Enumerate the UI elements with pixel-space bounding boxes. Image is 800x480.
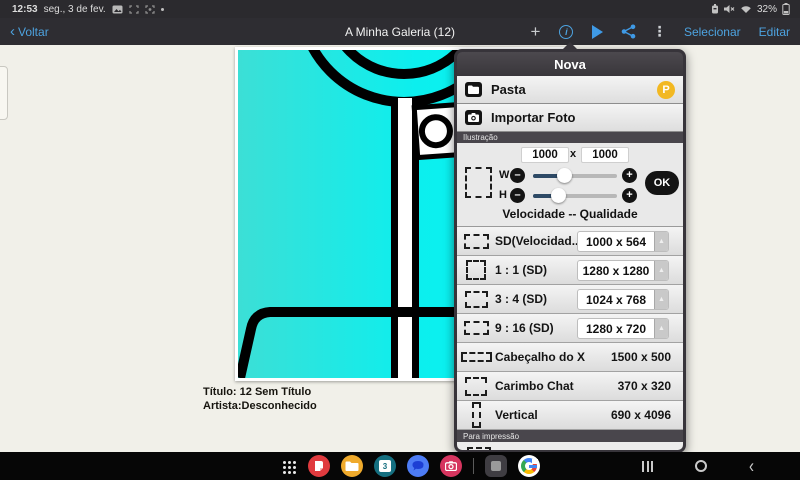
current-app-icon[interactable] <box>485 455 507 477</box>
folder-icon <box>465 82 482 97</box>
gallery-toolbar: ‹ Voltar A Minha Galeria (12) + i ⋮ Sele… <box>0 18 800 45</box>
aspect-9-16-icon <box>464 321 489 335</box>
calendar-app-icon[interactable]: 3 <box>374 455 396 477</box>
preset-x-header[interactable]: Cabeçalho do X 1500 x 500 <box>457 343 683 372</box>
info-button[interactable]: i <box>551 21 582 43</box>
camera-app-icon[interactable] <box>440 455 462 477</box>
smart-capture-icon <box>145 5 155 14</box>
artwork-artist: Artista:Desconhecido <box>203 399 317 413</box>
speed-quality-hint: Velocidade -- Qualidade <box>457 207 683 221</box>
spinner-arrow-icon: ▲ <box>654 319 668 338</box>
preset-sd[interactable]: SD(Velocidad... 1000 x 564 ▲ <box>457 227 683 256</box>
spinner-arrow-icon: ▲ <box>654 261 668 280</box>
calendar-day: 3 <box>379 460 391 472</box>
height-slider-thumb[interactable] <box>551 188 566 203</box>
more-dot-icon <box>161 8 164 11</box>
preset-chat-stamp[interactable]: Carimbo Chat 370 x 320 <box>457 372 683 401</box>
width-slider-track[interactable] <box>533 174 617 178</box>
battery-saver-icon <box>711 4 719 14</box>
dock-separator <box>473 458 474 474</box>
share-icon <box>621 24 636 39</box>
back-button[interactable]: ‹ Voltar <box>0 24 49 39</box>
preset-3-4-dropdown[interactable]: 1024 x 768 ▲ <box>577 289 669 310</box>
edit-button[interactable]: Editar <box>750 25 792 39</box>
artwork-caption: Título: 12 Sem Título Artista:Desconheci… <box>203 385 317 413</box>
preset-1-1[interactable]: 1 : 1 (SD) 1280 x 1280 ▲ <box>457 256 683 285</box>
ok-button[interactable]: OK <box>645 171 679 195</box>
width-slider-label: W <box>499 169 509 181</box>
info-icon: i <box>559 25 573 39</box>
section-illustration: Ilustração <box>457 132 683 143</box>
height-slider-label: H <box>499 189 507 201</box>
gallery-content: Título: 12 Sem Título Artista:Desconheci… <box>0 45 800 452</box>
camera-icon <box>465 110 482 125</box>
aspect-stamp-icon <box>465 377 487 396</box>
screen: 12:53 seg., 3 de fev. 32% <box>0 0 800 480</box>
clock: 12:53 <box>12 4 38 15</box>
play-icon <box>592 25 603 39</box>
import-photo-item[interactable]: Importar Foto <box>457 104 683 132</box>
width-minus-button[interactable]: – <box>510 168 525 183</box>
wifi-icon <box>740 4 752 14</box>
aspect-vertical-icon <box>472 402 481 428</box>
preset-vertical[interactable]: Vertical 690 x 4096 <box>457 401 683 430</box>
custom-aspect-icon <box>465 167 492 198</box>
mute-icon <box>724 4 735 14</box>
width-plus-button[interactable]: + <box>622 168 637 183</box>
select-button[interactable]: Selecionar <box>675 25 750 39</box>
aspect-header-icon <box>461 352 492 362</box>
width-input[interactable]: 1000 <box>521 147 569 163</box>
preset-9-16-dropdown[interactable]: 1280 x 720 ▲ <box>577 318 669 339</box>
screenshot-icon <box>112 5 123 14</box>
back-label: Voltar <box>18 25 49 39</box>
aspect-3-4-icon <box>465 291 488 308</box>
spinner-arrow-icon: ▲ <box>654 290 668 309</box>
artwork-title: Título: 12 Sem Título <box>203 385 317 399</box>
height-minus-button[interactable]: – <box>510 188 525 203</box>
plus-icon: + <box>530 22 540 42</box>
back-key[interactable]: ‹ <box>749 456 754 476</box>
spinner-arrow-icon: ▲ <box>654 232 668 251</box>
new-canvas-dialog: Nova Pasta P Importar Foto Ilustração <box>454 49 686 453</box>
height-slider-track[interactable] <box>533 194 617 198</box>
slideshow-button[interactable] <box>582 21 613 43</box>
folder-label: Pasta <box>491 82 526 97</box>
aspect-1-1-icon <box>466 260 486 280</box>
height-plus-button[interactable]: + <box>622 188 637 203</box>
height-input[interactable]: 1000 <box>581 147 629 163</box>
custom-size-panel: 1000 x 1000 W – + H – + OK Velocidade --… <box>457 143 683 227</box>
preset-1-1-dropdown[interactable]: 1280 x 1280 ▲ <box>577 260 669 281</box>
my-files-app-icon[interactable] <box>341 455 363 477</box>
apps-grid-icon[interactable] <box>283 461 297 475</box>
previous-artwork-card[interactable] <box>0 66 8 120</box>
back-chevron-icon: ‹ <box>10 24 15 39</box>
date: seg., 3 de fev. <box>44 4 106 15</box>
overflow-icon: ⋮ <box>652 23 666 40</box>
premium-badge: P <box>657 81 675 99</box>
width-slider-thumb[interactable] <box>557 168 572 183</box>
import-photo-label: Importar Foto <box>491 110 576 125</box>
aspect-sd-icon <box>464 234 489 249</box>
section-print: Para impressão <box>457 430 683 442</box>
home-key[interactable] <box>695 460 707 472</box>
size-x-separator: x <box>570 148 576 160</box>
dialog-caret <box>562 42 578 50</box>
battery-percent: 32% <box>757 4 777 15</box>
messages-app-icon[interactable] <box>407 455 429 477</box>
share-button[interactable] <box>613 21 644 43</box>
capture-frame-icon <box>129 5 139 14</box>
new-folder-item[interactable]: Pasta P <box>457 76 683 104</box>
status-bar: 12:53 seg., 3 de fev. 32% <box>0 0 800 18</box>
taskbar: 3 ‹ <box>0 452 800 480</box>
new-button[interactable]: + <box>520 21 551 43</box>
overflow-menu-button[interactable]: ⋮ <box>644 21 675 43</box>
chrome-app-icon[interactable] <box>518 455 540 477</box>
battery-icon <box>782 3 790 15</box>
notes-app-icon[interactable] <box>308 455 330 477</box>
recents-key[interactable] <box>642 461 653 472</box>
preset-sd-dropdown[interactable]: 1000 x 564 ▲ <box>577 231 669 252</box>
preset-3-4[interactable]: 3 : 4 (SD) 1024 x 768 ▲ <box>457 285 683 314</box>
preset-9-16[interactable]: 9 : 16 (SD) 1280 x 720 ▲ <box>457 314 683 343</box>
aspect-print-icon <box>467 447 491 450</box>
dialog-title: Nova <box>457 52 683 76</box>
preset-partial-row[interactable] <box>457 442 683 450</box>
